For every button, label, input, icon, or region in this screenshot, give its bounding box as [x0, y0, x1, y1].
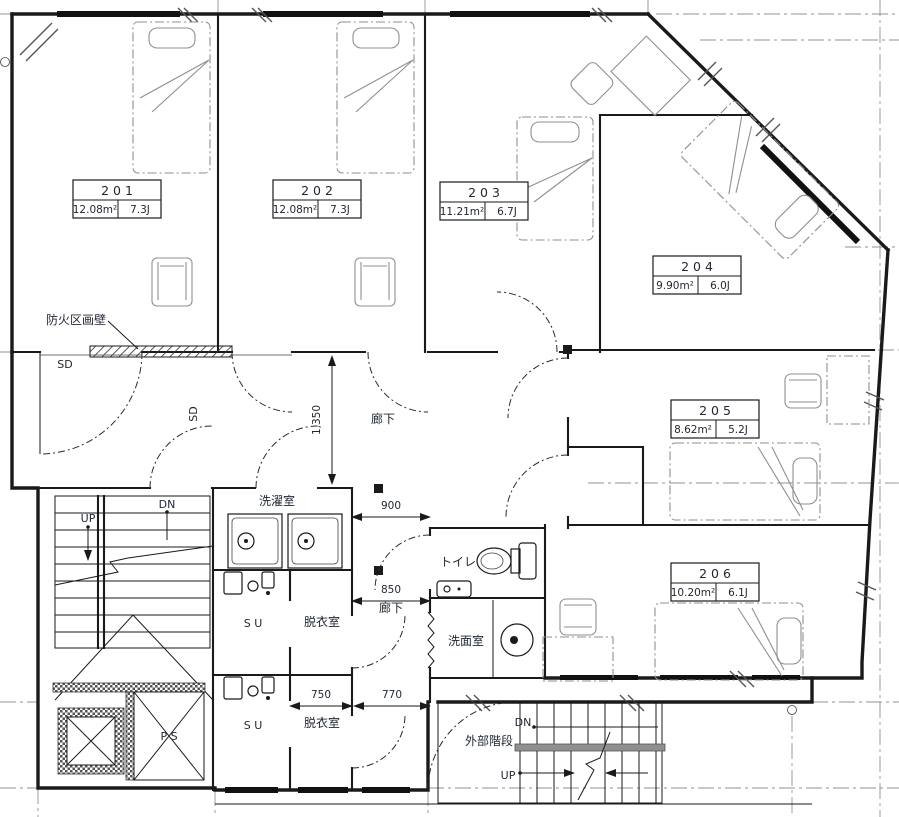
down-label-external: DN — [515, 716, 532, 729]
chair-205 — [785, 374, 821, 408]
grid-lines — [0, 0, 899, 817]
window — [752, 675, 800, 680]
bed-205 — [670, 443, 820, 520]
desk-205 — [827, 356, 869, 424]
room-size: 7.3J — [130, 204, 150, 216]
bed-203 — [517, 117, 593, 240]
laundry-room-label: 洗濯室 — [259, 493, 295, 508]
room-label-202: 2 0 2 12.08m² 7.3J — [273, 180, 361, 218]
room-area: 11.21m² — [440, 206, 485, 218]
room-number: 2 0 2 — [301, 183, 333, 198]
room-area: 10.20m² — [671, 587, 716, 599]
column-section — [563, 345, 572, 354]
toilet-label: トイレ — [440, 555, 476, 569]
steel-door-label: SD — [57, 358, 72, 371]
windows — [57, 11, 884, 793]
corridor-label-2: 廊下 — [379, 600, 403, 615]
accordion-door — [428, 612, 434, 668]
window — [225, 787, 278, 793]
room-area: 8.62m² — [674, 424, 712, 436]
floor-plan-svg: 900 850 750 770 1,350 2 0 1 12.08m² 7.3J… — [0, 0, 899, 817]
chair-202 — [355, 258, 395, 306]
room-label-204: 2 0 4 9.90m² 6.0J — [653, 256, 741, 294]
room-size: 5.2J — [728, 424, 748, 436]
room-label-206: 2 0 6 10.20m² 6.1J — [671, 563, 759, 601]
down-label-internal: DN — [159, 498, 176, 511]
room-area: 9.90m² — [656, 280, 694, 292]
dimensions: 900 850 750 770 1,350 — [290, 356, 430, 706]
toilet-hand-sink — [437, 581, 471, 597]
external-stairs-label: 外部階段 — [465, 733, 513, 748]
room-labels: 2 0 1 12.08m² 7.3J 2 0 2 12.08m² 7.3J 2 … — [73, 180, 759, 601]
room-label-201: 2 0 1 12.08m² 7.3J — [73, 180, 161, 218]
shower-unit-fixtures-2 — [224, 677, 274, 700]
room-size: 7.3J — [330, 204, 350, 216]
up-label-internal: UP — [81, 512, 96, 525]
room-number: 2 0 4 — [681, 259, 713, 274]
dim-770: 770 — [382, 689, 402, 701]
window — [57, 11, 180, 17]
shower-unit-fixtures-1 — [224, 572, 274, 595]
room-number: 2 0 6 — [699, 566, 731, 581]
room-area: 12.08m² — [73, 204, 118, 216]
room-number: 2 0 3 — [468, 185, 500, 200]
dim-1350: 1,350 — [311, 405, 323, 435]
window — [450, 11, 590, 17]
dim-750: 750 — [311, 689, 331, 701]
bed-202 — [337, 22, 414, 173]
bed-201 — [133, 22, 210, 173]
fire-compartment-wall — [90, 321, 232, 357]
room-label-205: 2 0 5 8.62m² 5.2J — [671, 400, 759, 438]
shower-unit-label-2: S U — [244, 719, 263, 732]
washroom-label: 洗面室 — [448, 633, 484, 648]
bed-206 — [655, 603, 803, 680]
steel-door-label-vertical: SD — [187, 406, 200, 421]
pipe-shaft-label: P S — [160, 730, 177, 743]
room-area: 12.08m² — [273, 204, 318, 216]
room-number: 2 0 1 — [101, 183, 133, 198]
chair-206 — [560, 599, 596, 635]
fire-wall-label: 防火区画壁 — [46, 312, 106, 327]
grid-bubble — [788, 706, 797, 715]
shower-unit-label-1: S U — [244, 617, 263, 630]
column-section — [374, 484, 383, 493]
dressing-room-label-2: 脱衣室 — [304, 715, 340, 730]
chair-201 — [152, 258, 192, 306]
room-size: 6.0J — [710, 280, 730, 292]
window — [298, 787, 348, 793]
room-label-203: 2 0 3 11.21m² 6.7J — [440, 182, 528, 220]
toilet — [477, 543, 536, 579]
washing-machine-2 — [288, 514, 342, 568]
dressing-room-label-1: 脱衣室 — [304, 614, 340, 629]
washing-machine-1 — [228, 514, 282, 568]
dim-900: 900 — [381, 500, 401, 512]
corridor-label: 廊下 — [371, 411, 395, 426]
window — [263, 11, 383, 17]
internal-staircase — [55, 496, 213, 700]
window — [362, 787, 410, 793]
washroom-sink — [493, 600, 533, 678]
floor-plan: 900 850 750 770 1,350 2 0 1 12.08m² 7.3J… — [0, 0, 899, 817]
up-label-external: UP — [501, 769, 516, 782]
room-number: 2 0 5 — [699, 403, 731, 418]
grid-bubble — [1, 58, 10, 67]
dim-850: 850 — [381, 584, 401, 596]
desk-206 — [543, 637, 613, 681]
room-size: 6.1J — [728, 587, 748, 599]
room-size: 6.7J — [497, 206, 517, 218]
window — [560, 675, 638, 680]
window — [660, 675, 738, 680]
